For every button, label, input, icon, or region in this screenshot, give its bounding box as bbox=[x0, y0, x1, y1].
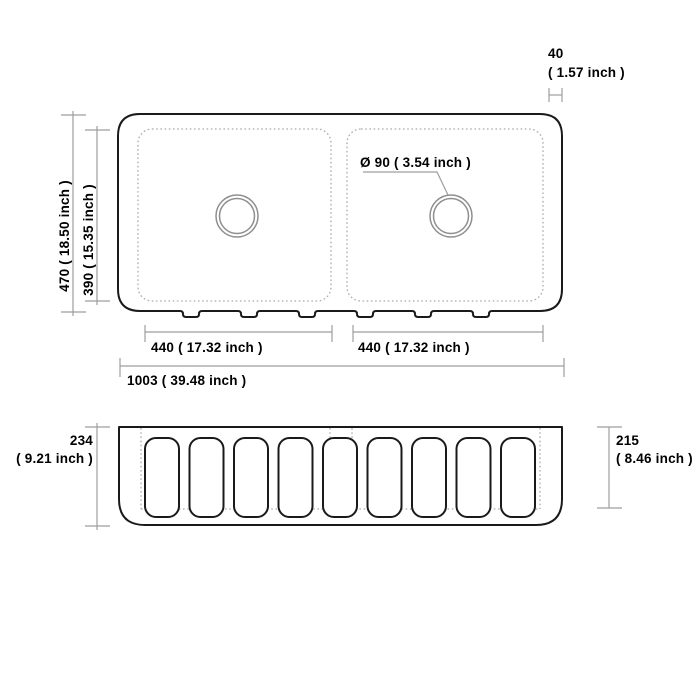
apron-flute bbox=[368, 438, 402, 517]
apron-flute bbox=[323, 438, 357, 517]
right-bowl-width-label: 440 ( 17.32 inch ) bbox=[358, 340, 470, 355]
overall-width-dimension: 1003 ( 39.48 inch ) bbox=[120, 358, 564, 388]
front-view: 234 ( 9.21 inch ) 215 ( 8.46 inch ) bbox=[16, 423, 693, 530]
apron-flute bbox=[412, 438, 446, 517]
left-bowl-width-dimension: 440 ( 17.32 inch ) bbox=[145, 325, 332, 355]
left-bowl-width-label: 440 ( 17.32 inch ) bbox=[151, 340, 263, 355]
overall-height-value: 234 bbox=[70, 433, 93, 448]
drain-diameter-label: Ø 90 ( 3.54 inch ) bbox=[360, 155, 471, 170]
apron-height-value: 215 bbox=[616, 433, 639, 448]
apron-height-inch: ( 8.46 inch ) bbox=[616, 451, 693, 466]
bowl-depth-dimension: 390 ( 15.35 inch ) bbox=[81, 126, 110, 305]
apron-flutes bbox=[145, 438, 535, 517]
rim-width-value: 40 bbox=[548, 46, 563, 61]
bowl-depth-label: 390 ( 15.35 inch ) bbox=[81, 184, 96, 296]
rim-width-dimension: 40 ( 1.57 inch ) bbox=[548, 46, 625, 102]
apron-flute bbox=[234, 438, 268, 517]
apron-flute bbox=[457, 438, 491, 517]
overall-height-inch: ( 9.21 inch ) bbox=[16, 451, 93, 466]
apron-flute bbox=[145, 438, 179, 517]
overall-depth-label: 470 ( 18.50 inch ) bbox=[57, 180, 72, 292]
overall-width-label: 1003 ( 39.48 inch ) bbox=[127, 373, 246, 388]
sink-top-view-outline bbox=[118, 114, 562, 317]
sink-dimension-drawing: Ø 90 ( 3.54 inch ) 470 ( 18.50 inch ) 39… bbox=[0, 0, 700, 700]
apron-height-dimension: 215 ( 8.46 inch ) bbox=[597, 427, 693, 508]
technical-drawing-canvas: Ø 90 ( 3.54 inch ) 470 ( 18.50 inch ) 39… bbox=[0, 0, 700, 700]
overall-height-dimension: 234 ( 9.21 inch ) bbox=[16, 423, 110, 530]
apron-flute bbox=[279, 438, 313, 517]
right-bowl-width-dimension: 440 ( 17.32 inch ) bbox=[353, 325, 543, 355]
rim-width-inch: ( 1.57 inch ) bbox=[548, 65, 625, 80]
apron-flute bbox=[501, 438, 535, 517]
top-view: Ø 90 ( 3.54 inch ) 470 ( 18.50 inch ) 39… bbox=[57, 46, 625, 388]
apron-flute bbox=[190, 438, 224, 517]
